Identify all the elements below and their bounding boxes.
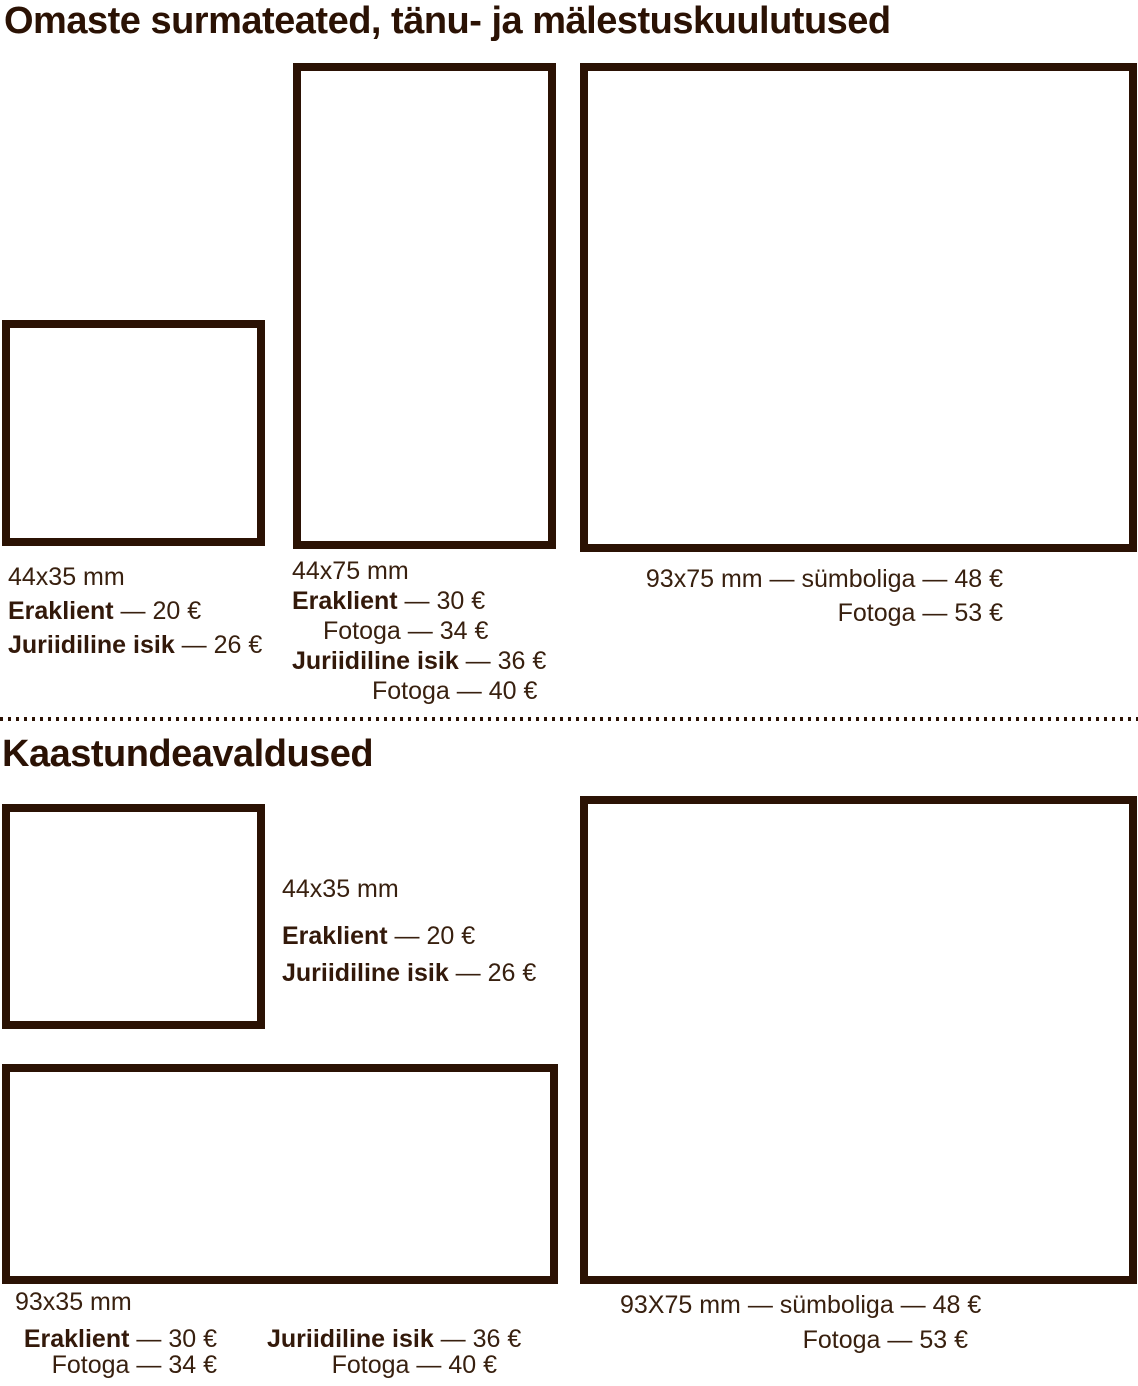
price-line: Fotoga — 53 € bbox=[619, 596, 1003, 630]
price-block-44x35: 44x35 mm Eraklient — 20 € Juriidiline is… bbox=[8, 560, 262, 662]
size-label: 44x35 mm bbox=[8, 560, 262, 594]
price-col-eraklient-93x35: Eraklient — 30 € Fotoga — 34 € bbox=[15, 1326, 217, 1378]
price-line: 93X75 mm — sümboliga — 48 € bbox=[620, 1288, 968, 1323]
price-line: Juriidiline isik — 36 € bbox=[267, 1326, 497, 1352]
price-line: Fotoga — 34 € bbox=[292, 616, 546, 646]
price-list-page: Omaste surmateated, tänu- ja mälestuskuu… bbox=[0, 0, 1138, 1386]
dotted-divider bbox=[0, 717, 1138, 721]
section-title-kaastundeavaldused: Kaastundeavaldused bbox=[2, 733, 373, 776]
price-block-44x35-condolence: 44x35 mm Eraklient — 20 € Juriidiline is… bbox=[282, 871, 536, 992]
ad-sample-box-44x35 bbox=[2, 320, 265, 546]
ad-sample-box-93x35-condolence bbox=[2, 1064, 558, 1284]
price-line: Fotoga — 40 € bbox=[292, 676, 546, 706]
price-line: Eraklient — 20 € bbox=[282, 918, 536, 955]
ad-sample-box-93x75 bbox=[580, 63, 1137, 552]
price-line: Juriidiline isik — 36 € bbox=[292, 646, 546, 676]
price-line: Fotoga — 34 € bbox=[15, 1352, 217, 1378]
size-label: 44x35 mm bbox=[282, 871, 536, 908]
section-title-surmateated: Omaste surmateated, tänu- ja mälestuskuu… bbox=[4, 0, 891, 43]
price-line: Eraklient — 20 € bbox=[8, 594, 262, 628]
price-line: Juriidiline isik — 26 € bbox=[282, 955, 536, 992]
ad-sample-box-93x75-condolence bbox=[580, 796, 1137, 1284]
price-line: Eraklient — 30 € bbox=[292, 586, 546, 616]
ad-sample-box-44x35-condolence bbox=[2, 804, 265, 1029]
price-block-44x75: 44x75 mm Eraklient — 30 € Fotoga — 34 € … bbox=[292, 556, 546, 706]
price-block-93x75: 93x75 mm — sümboliga — 48 € Fotoga — 53 … bbox=[619, 562, 1003, 630]
price-block-93x75-condolence: 93X75 mm — sümboliga — 48 € Fotoga — 53 … bbox=[620, 1288, 968, 1358]
price-line: Juriidiline isik — 26 € bbox=[8, 628, 262, 662]
size-label-93x35: 93x35 mm bbox=[15, 1288, 132, 1317]
price-line: 93x75 mm — sümboliga — 48 € bbox=[619, 562, 1003, 596]
price-line: Fotoga — 40 € bbox=[267, 1352, 497, 1378]
ad-sample-box-44x75 bbox=[293, 63, 556, 549]
price-line: Eraklient — 30 € bbox=[15, 1326, 217, 1352]
price-line: Fotoga — 53 € bbox=[620, 1323, 968, 1358]
size-label: 44x75 mm bbox=[292, 556, 546, 586]
price-col-juriidiline-93x35: Juriidiline isik — 36 € Fotoga — 40 € bbox=[267, 1326, 497, 1378]
